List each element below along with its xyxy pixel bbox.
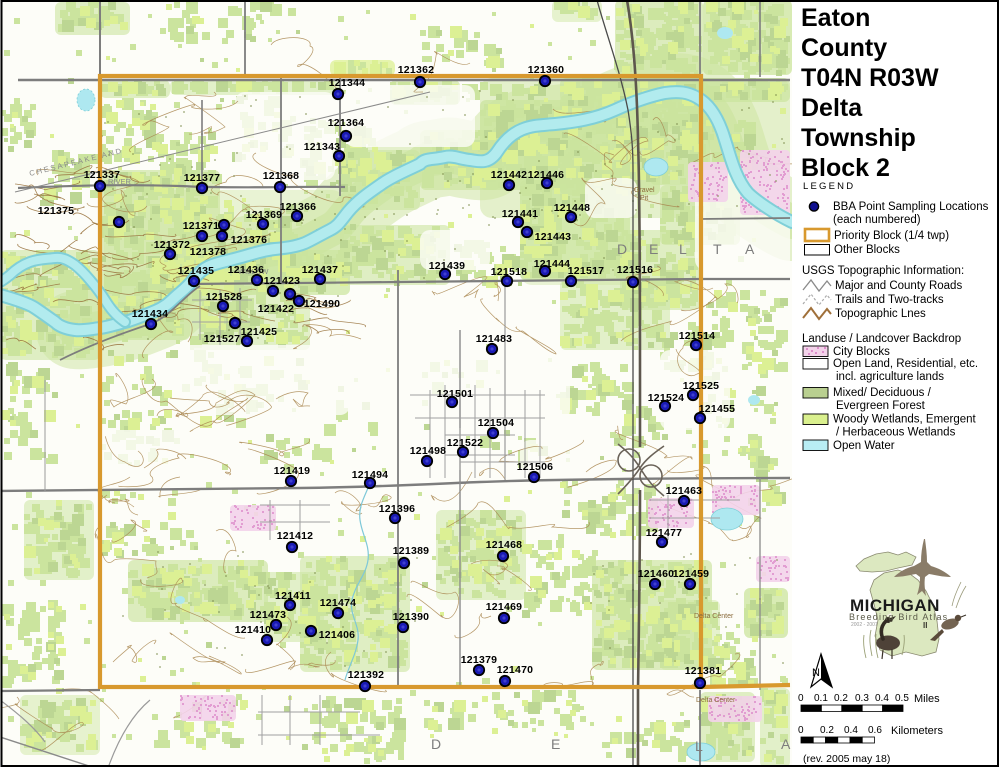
svg-text:Evergreen Forest: Evergreen Forest [836,400,926,412]
svg-text:121369: 121369 [246,209,283,221]
svg-text:E: E [551,736,560,752]
svg-text:121377: 121377 [184,172,221,184]
svg-text:D: D [431,736,441,752]
svg-text:121460: 121460 [638,568,675,580]
svg-text:121463: 121463 [666,485,703,497]
svg-text:Eaton: Eaton [801,4,870,32]
svg-text:121412: 121412 [277,530,314,542]
svg-text:2002 - 2007: 2002 - 2007 [851,622,878,628]
svg-text:121490: 121490 [304,298,341,310]
svg-text:121372: 121372 [154,239,191,251]
svg-text:0.2: 0.2 [820,725,834,736]
svg-text:121406: 121406 [319,629,356,641]
svg-text:0: 0 [798,725,804,736]
svg-text:121448: 121448 [554,202,591,214]
svg-text:121410: 121410 [235,624,272,636]
svg-text:121376: 121376 [231,234,268,246]
svg-text:121459: 121459 [673,568,710,580]
svg-text:Topographic Lnes: Topographic Lnes [835,308,926,320]
svg-text:E: E [649,241,658,257]
svg-text:121470: 121470 [497,664,534,676]
svg-text:121527: 121527 [204,333,241,345]
svg-text:121517: 121517 [568,265,605,277]
svg-text:0.1: 0.1 [814,693,828,704]
svg-text:Major and County Roads: Major and County Roads [835,280,962,292]
svg-text:Miles: Miles [914,693,940,705]
svg-text:121389: 121389 [393,545,430,557]
svg-text:Open Water: Open Water [833,440,895,452]
svg-text:(each numbered): (each numbered) [833,214,921,226]
svg-text:121392: 121392 [348,669,385,681]
svg-text:Gravel: Gravel [634,187,655,194]
svg-text:Open Land, Residential, etc.: Open Land, Residential, etc. [833,358,978,370]
svg-text:Pit: Pit [640,195,648,202]
svg-text:0.2: 0.2 [834,693,848,704]
svg-text:Kilometers: Kilometers [891,725,943,737]
svg-text:Mixed/ Deciduous /: Mixed/ Deciduous / [833,387,932,399]
svg-text:N: N [812,667,820,679]
svg-text:121516: 121516 [617,264,654,276]
svg-text:121390: 121390 [393,611,430,623]
svg-text:0.4: 0.4 [875,693,889,704]
svg-text:121381: 121381 [685,665,722,677]
svg-text:121435: 121435 [178,265,215,277]
svg-text:121434: 121434 [132,308,169,320]
svg-text:T04N R03W: T04N R03W [801,64,939,92]
svg-text:121474: 121474 [320,597,357,609]
svg-text:121366: 121366 [280,201,317,213]
svg-text:121528: 121528 [206,291,243,303]
svg-text:121396: 121396 [379,503,416,515]
svg-text:Delta Center: Delta Center [694,613,734,620]
svg-text:L: L [679,241,687,257]
svg-text:(rev. 2005 may 18): (rev. 2005 may 18) [803,753,890,765]
svg-text:121411: 121411 [275,590,311,602]
svg-text:121468: 121468 [486,539,523,551]
svg-text:Breeding Bird Atlas: Breeding Bird Atlas [849,612,948,622]
svg-text:121378: 121378 [190,246,227,258]
svg-text:121423: 121423 [264,275,301,287]
svg-text:D: D [617,241,627,257]
svg-text:0.3: 0.3 [855,693,869,704]
svg-text:0.5: 0.5 [895,693,909,704]
svg-text:121362: 121362 [398,64,435,76]
svg-text:Delta: Delta [801,94,863,122]
svg-text:121504: 121504 [478,417,515,429]
svg-text:0: 0 [798,693,804,704]
svg-text:121368: 121368 [263,170,300,182]
svg-text:121343: 121343 [304,141,341,153]
svg-text:121375: 121375 [38,205,75,217]
svg-text:/ Herbaceous Wetlands: / Herbaceous Wetlands [836,427,956,439]
svg-text:121441: 121441 [502,208,539,220]
svg-text:121506: 121506 [517,461,554,473]
svg-text:T: T [713,241,722,257]
svg-text:121439: 121439 [429,260,466,272]
svg-text:L: L [695,738,703,754]
svg-text:Township: Township [801,124,916,152]
svg-text:Priority Block (1/4 twp): Priority Block (1/4 twp) [834,230,949,242]
svg-text:Other Blocks: Other Blocks [834,244,900,256]
svg-text:BBA Point Sampling Locations: BBA Point Sampling Locations [833,201,989,213]
svg-text:121494: 121494 [352,469,389,481]
svg-text:121501: 121501 [437,388,474,400]
svg-text:121469: 121469 [486,601,523,613]
svg-text:Trails and Two-tracks: Trails and Two-tracks [835,294,944,306]
svg-text:121337: 121337 [84,169,121,181]
svg-text:II: II [923,621,927,630]
svg-text:121344: 121344 [329,77,366,89]
svg-text:121360: 121360 [528,64,565,76]
svg-text:121444: 121444 [534,258,571,270]
svg-text:City Blocks: City Blocks [833,346,890,358]
svg-text:121525: 121525 [683,380,720,392]
svg-text:incl. agriculture lands: incl. agriculture lands [836,371,944,383]
svg-text:121379: 121379 [461,654,498,666]
svg-text:121446: 121446 [528,169,565,181]
svg-text:121473: 121473 [250,609,287,621]
svg-text:121436: 121436 [228,264,265,276]
svg-text:Woody Wetlands, Emergent: Woody Wetlands, Emergent [833,414,977,426]
svg-text:Landuse / Landcover Backdrop: Landuse / Landcover Backdrop [802,333,961,345]
svg-text:Block 2: Block 2 [801,154,890,182]
svg-text:121442: 121442 [491,169,528,181]
svg-text:121422: 121422 [258,303,295,315]
svg-text:121483: 121483 [476,333,513,345]
svg-text:USGS Topographic Information:: USGS Topographic Information: [802,265,964,277]
svg-text:121522: 121522 [447,437,484,449]
svg-text:121364: 121364 [328,117,365,129]
svg-text:121419: 121419 [274,465,311,477]
svg-text:121455: 121455 [699,403,736,415]
svg-text:LEGEND: LEGEND [803,181,855,192]
svg-text:A: A [781,736,791,752]
svg-text:A: A [745,241,755,257]
svg-text:121514: 121514 [679,330,716,342]
svg-text:0.6: 0.6 [868,725,882,736]
svg-text:121518: 121518 [491,266,528,278]
svg-text:121524: 121524 [648,392,685,404]
svg-text:0.4: 0.4 [844,725,858,736]
svg-text:121437: 121437 [302,264,339,276]
svg-text:County: County [801,34,887,62]
svg-text:121443: 121443 [535,231,572,243]
svg-text:Delta Center: Delta Center [696,697,736,704]
svg-text:121477: 121477 [646,527,683,539]
svg-text:121498: 121498 [410,445,447,457]
